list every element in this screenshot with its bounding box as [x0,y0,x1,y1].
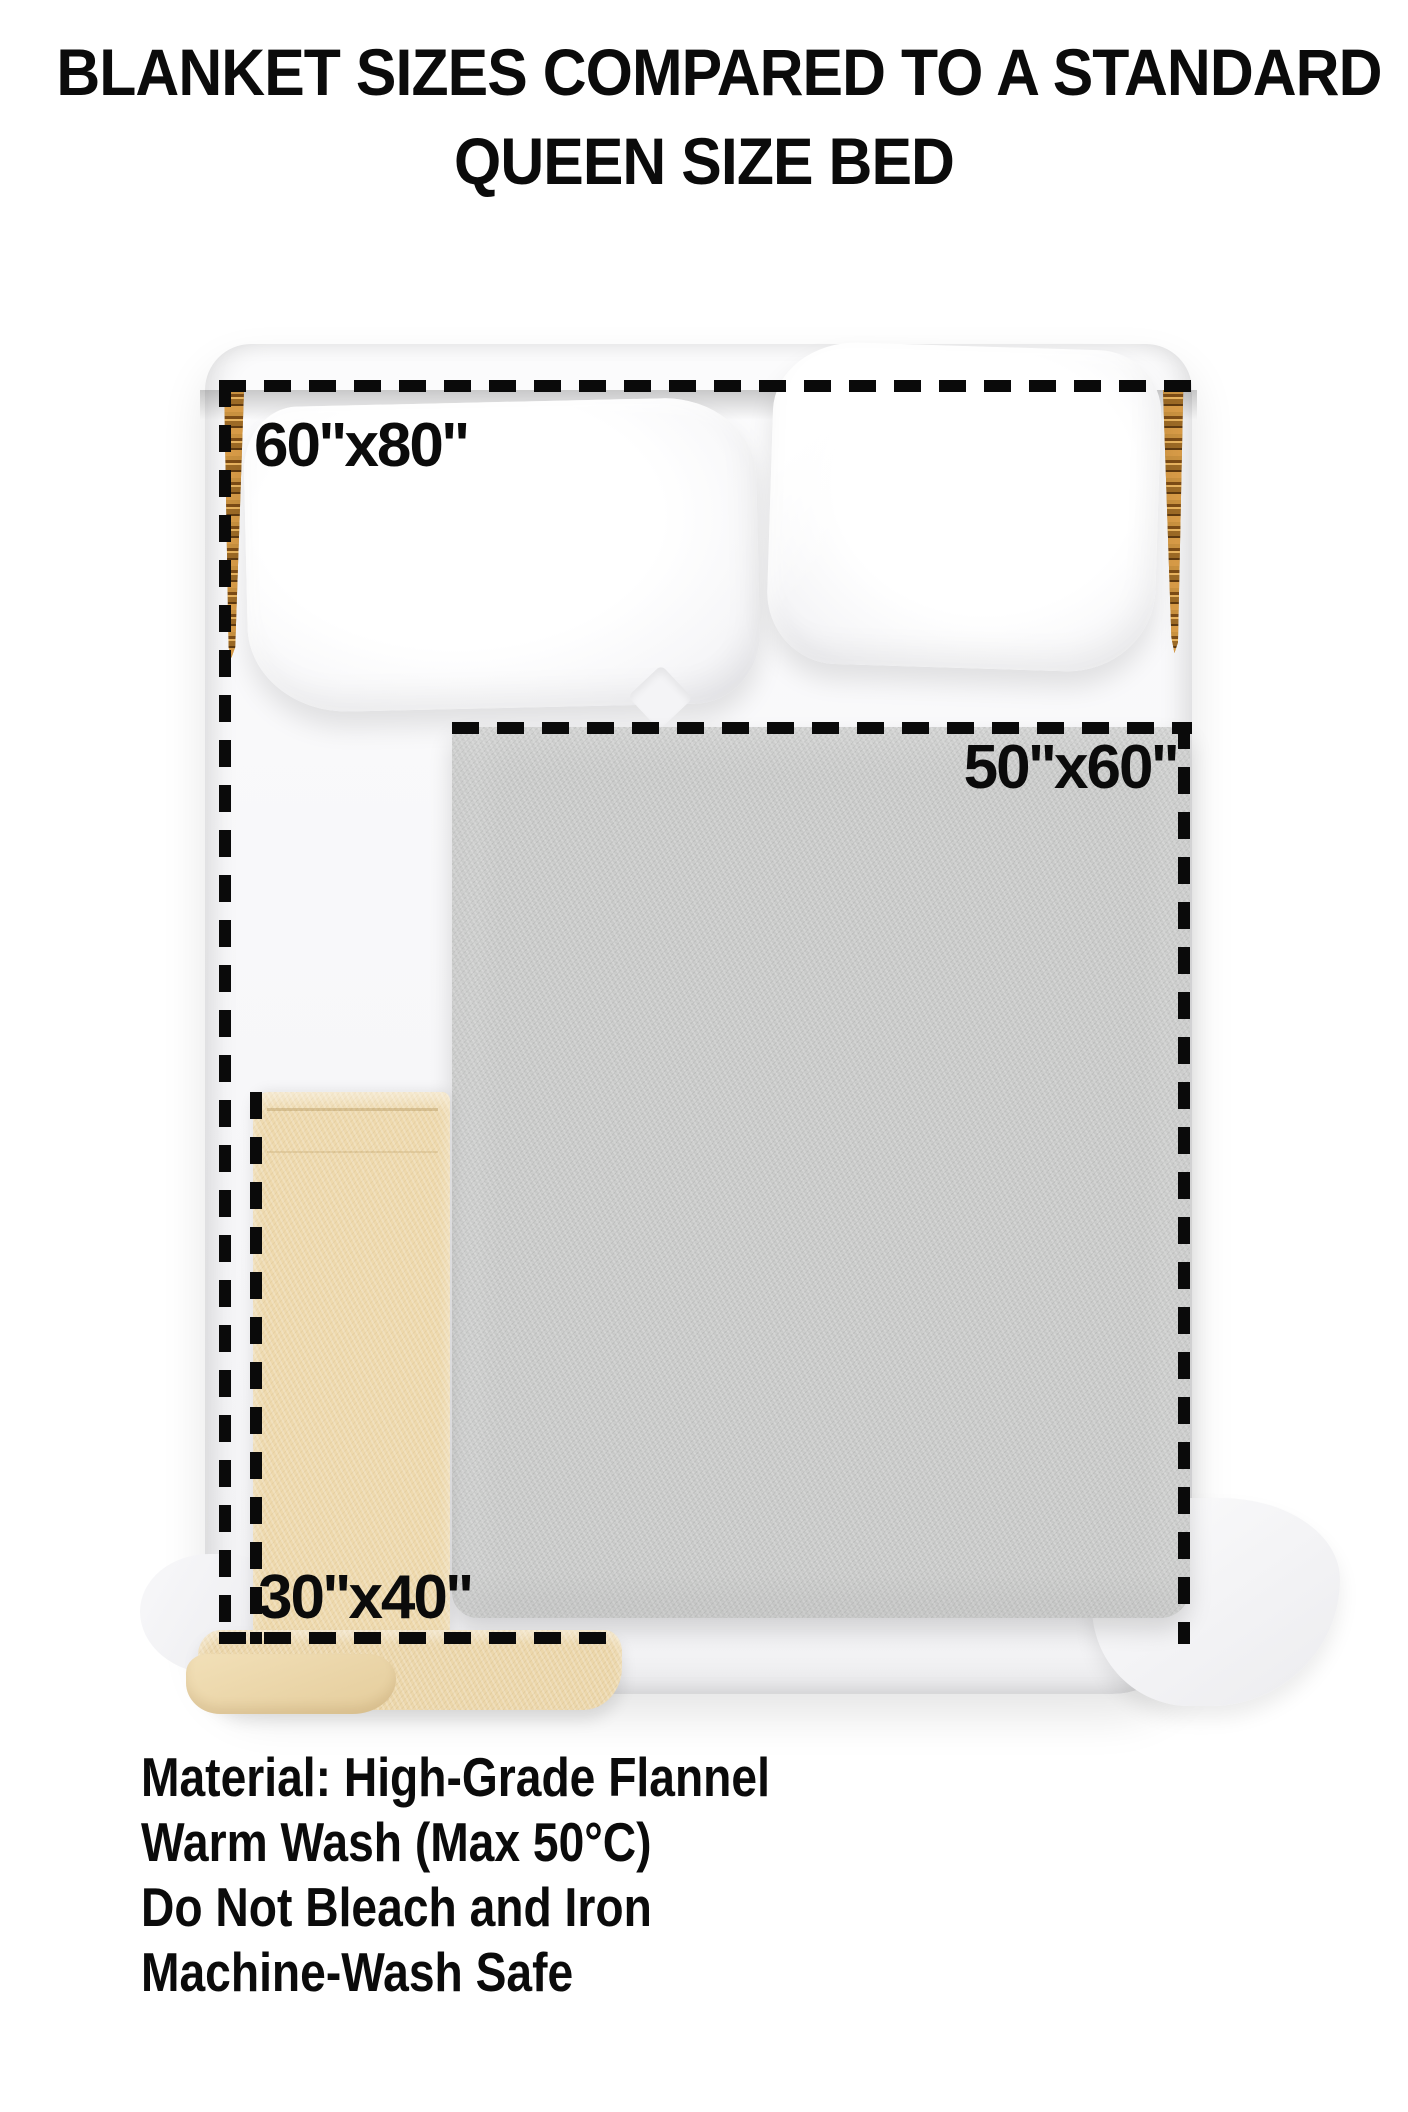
blanket-size-infographic: BLANKET SIZES COMPARED TO A STANDARD QUE… [0,0,1408,2112]
dashed-line-60x80-bottom [219,1632,607,1644]
dashed-line-60x80-left [219,380,231,1644]
care-line-wash: Warm Wash (Max 50°C) [141,1810,770,1875]
care-line-bleach: Do Not Bleach and Iron [141,1875,770,1940]
care-line-material: Material: High-Grade Flannel [141,1745,770,1810]
title-line-2: QUEEN SIZE BED [56,117,1351,206]
page-title: BLANKET SIZES COMPARED TO A STANDARD QUE… [56,28,1351,206]
size-label-30x40: 30''x40'' [258,1562,471,1633]
care-line-machine: Machine-Wash Safe [141,1940,770,2005]
title-line-1: BLANKET SIZES COMPARED TO A STANDARD [56,28,1351,117]
care-instructions: Material: High-Grade Flannel Warm Wash (… [141,1745,770,2005]
size-label-60x80: 60''x80'' [254,410,467,481]
dashed-line-60x80-top [219,380,1192,392]
dashed-line-50x60-right [1178,722,1190,1644]
blanket-50x60-gray [452,727,1190,1618]
blanket-30x40-beige [253,1092,450,1640]
size-label-50x60: 50''x60'' [964,732,1177,803]
